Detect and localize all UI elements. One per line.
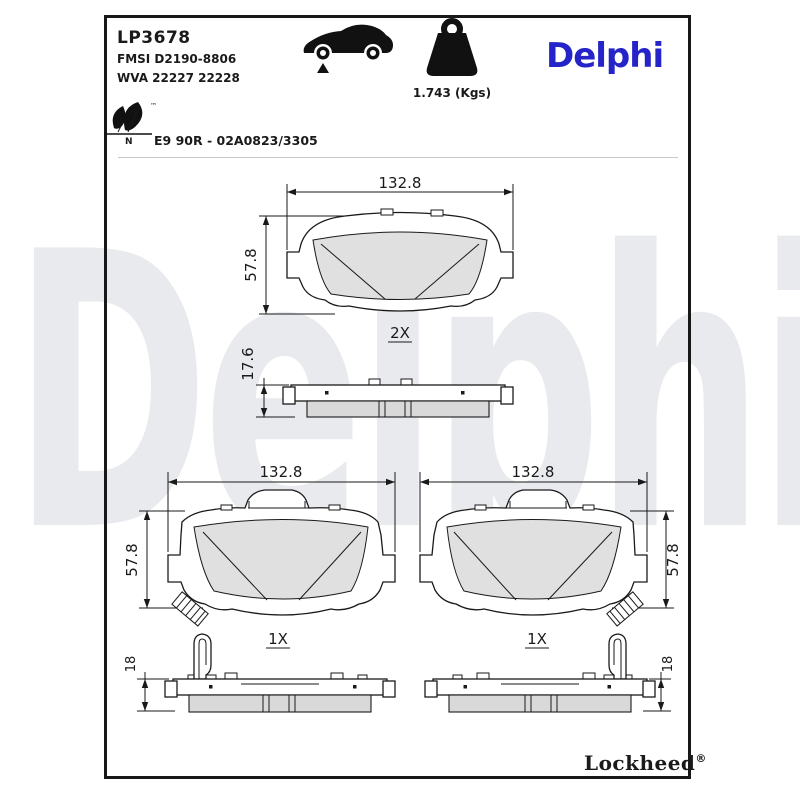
lockheed-logo: Lockheed® [584, 751, 707, 775]
friction-face [447, 520, 621, 600]
leaf-right [124, 102, 142, 131]
trademark-mark: ™ [150, 102, 157, 110]
dim-height-label: 57.8 [664, 543, 682, 576]
pad-front-left-outline [168, 490, 395, 626]
front-axle-arrow-icon [317, 63, 329, 73]
lockheed-wordmark: Lockheed [584, 751, 695, 775]
fmsi-reference: FMSI D2190-8806 [117, 52, 236, 66]
wear-indicator-side [609, 634, 626, 679]
car-icon [299, 20, 395, 76]
leaf-left [113, 106, 126, 129]
friction-face [313, 232, 487, 300]
weight-icon [420, 16, 484, 80]
pad-side-left-outline [165, 634, 395, 712]
friction-side [307, 401, 489, 417]
weight-value: 1.743 (Kgs) [402, 86, 502, 100]
dim-height-label: 57.8 [242, 248, 260, 281]
dimension-thickness-pair: 17.6 [239, 347, 295, 417]
view-side-left: 18 [115, 622, 415, 727]
view-side-pair: 17.6 [233, 342, 533, 437]
pad-side-outline [283, 379, 513, 417]
dim-thickness-label: 18 [124, 656, 139, 673]
dim-thickness-label: 18 [661, 656, 676, 673]
friction-side [189, 695, 371, 712]
eco-letter: N [125, 137, 133, 147]
pad-front-right-outline [420, 490, 647, 626]
view-front-2x: 132.8 57.8 2X [235, 172, 565, 347]
delphi-logo: Delphi [546, 36, 663, 76]
eco-leaf-icon: ™ N [106, 99, 160, 147]
view-side-right: 18 [405, 622, 705, 727]
approval-number: E9 90R - 02A0823/3305 [154, 133, 318, 148]
dim-height-label: 57.8 [123, 543, 141, 576]
wva-reference: WVA 22227 22228 [117, 71, 240, 85]
datasheet-page: Delphi LP3678 FMSI D2190-8806 WVA 22227 … [0, 0, 800, 800]
friction-face [194, 520, 368, 600]
dim-width-label: 132.8 [379, 174, 422, 192]
quantity-label-2x: 2X [390, 324, 410, 342]
dim-width-label: 132.8 [260, 463, 303, 481]
pad-front-outline [287, 209, 513, 311]
wear-indicator-side [194, 634, 211, 679]
header-separator [118, 157, 678, 158]
dim-width-label: 132.8 [512, 463, 555, 481]
registered-mark: ® [695, 752, 707, 765]
dim-thickness-label: 17.6 [239, 347, 257, 380]
pad-side-right-outline [425, 634, 655, 712]
part-number: LP3678 [117, 28, 191, 48]
friction-side [449, 695, 631, 712]
